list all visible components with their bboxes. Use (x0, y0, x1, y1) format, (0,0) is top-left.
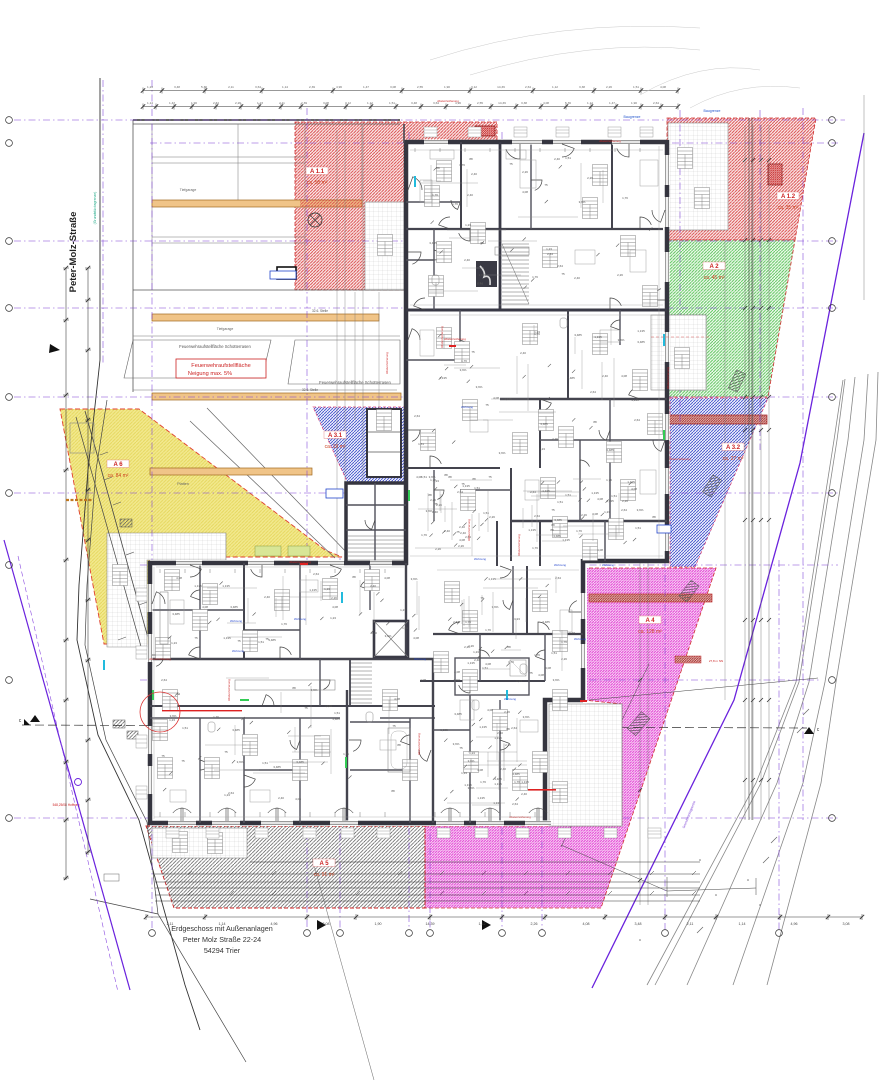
svg-text:Peter Molz Straße 22-24: Peter Molz Straße 22-24 (183, 935, 261, 944)
svg-text:2,40: 2,40 (464, 258, 470, 262)
svg-text:3,485: 3,485 (172, 612, 180, 616)
svg-text:2,11: 2,11 (687, 922, 694, 926)
svg-text:1,14: 1,14 (587, 101, 593, 105)
svg-text:1,12: 1,12 (552, 85, 558, 89)
svg-text:88: 88 (551, 523, 555, 527)
svg-text:2,40: 2,40 (574, 276, 580, 280)
svg-text:1,90: 1,90 (444, 85, 450, 89)
svg-text:Wohnung: Wohnung (230, 619, 242, 623)
svg-text:1,23: 1,23 (147, 85, 153, 89)
svg-text:1,51: 1,51 (421, 475, 427, 479)
svg-text:2,64: 2,64 (512, 802, 518, 806)
svg-text:Feuerwehraufstellfläche Schott: Feuerwehraufstellfläche Schotterrasen (319, 380, 391, 385)
svg-text:1,51: 1,51 (635, 526, 641, 530)
svg-text:4,08: 4,08 (538, 673, 544, 677)
svg-text:3,485: 3,485 (554, 518, 562, 522)
svg-text:2,40: 2,40 (432, 510, 438, 514)
svg-text:Wohnung: Wohnung (504, 697, 516, 701)
svg-text:4,08: 4,08 (631, 487, 637, 491)
svg-text:2,26: 2,26 (617, 273, 623, 277)
svg-text:3,6%: 3,6% (579, 200, 586, 204)
svg-text:1,23: 1,23 (400, 608, 406, 612)
svg-text:3,08: 3,08 (323, 922, 330, 926)
svg-text:54294 Trier: 54294 Trier (204, 946, 241, 955)
svg-text:1,51: 1,51 (565, 493, 571, 497)
svg-text:1,76: 1,76 (485, 628, 491, 632)
svg-text:3,485: 3,485 (542, 620, 550, 624)
svg-text:Platten: Platten (177, 482, 189, 486)
svg-text:1,23: 1,23 (546, 247, 552, 251)
svg-text:88: 88 (506, 727, 510, 731)
svg-text:Absturzsicherung: Absturzsicherung (467, 519, 471, 541)
svg-text:1,12: 1,12 (367, 101, 373, 105)
svg-text:1,51: 1,51 (611, 494, 617, 498)
svg-text:2,26: 2,26 (331, 596, 337, 600)
svg-text:1,76: 1,76 (461, 359, 467, 363)
svg-text:75: 75 (392, 724, 396, 728)
svg-text:1,76: 1,76 (514, 780, 520, 784)
svg-text:A 1.1: A 1.1 (310, 169, 325, 175)
svg-text:3,6%: 3,6% (411, 577, 418, 581)
svg-text:Absturzsicherung: Absturzsicherung (437, 99, 459, 103)
svg-text:Wohnung: Wohnung (294, 617, 306, 621)
svg-text:3,08: 3,08 (323, 101, 329, 105)
svg-text:1,76: 1,76 (532, 546, 538, 550)
svg-text:1,135: 1,135 (594, 335, 602, 339)
svg-text:3,485: 3,485 (574, 333, 582, 337)
svg-text:3,38: 3,38 (521, 101, 527, 105)
svg-text:88: 88 (352, 575, 356, 579)
svg-text:Erdgeschoss mit Außenanlagen: Erdgeschoss mit Außenanlagen (171, 924, 272, 933)
svg-text:Absturzsicherung: Absturzsicherung (669, 457, 691, 461)
svg-text:2,64: 2,64 (634, 418, 640, 422)
svg-text:1,135: 1,135 (477, 796, 485, 800)
svg-text:2,64: 2,64 (525, 85, 531, 89)
svg-text:4,08: 4,08 (487, 708, 493, 712)
svg-text:4,08: 4,08 (176, 576, 182, 580)
svg-text:2,26: 2,26 (552, 437, 558, 441)
svg-text:32.6. Stelle: 32.6. Stelle (302, 388, 318, 392)
svg-text:A 4: A 4 (645, 618, 655, 624)
svg-text:4,96: 4,96 (336, 85, 342, 89)
svg-text:4,08: 4,08 (660, 85, 666, 89)
svg-text:3,485: 3,485 (606, 448, 614, 452)
svg-text:3,6%: 3,6% (476, 385, 483, 389)
svg-text:88: 88 (292, 686, 296, 690)
svg-text:2,26: 2,26 (235, 101, 241, 105)
svg-text:1,23: 1,23 (516, 679, 522, 683)
svg-text:Wohnung: Wohnung (554, 563, 566, 567)
svg-text:2,26: 2,26 (531, 922, 538, 926)
svg-text:2,64: 2,64 (557, 264, 563, 268)
svg-text:2,64: 2,64 (621, 508, 627, 512)
svg-text:1,23: 1,23 (257, 101, 263, 105)
svg-text:1,14: 1,14 (739, 922, 746, 926)
svg-text:3,485: 3,485 (540, 422, 548, 426)
svg-text:1,14: 1,14 (282, 85, 288, 89)
svg-text:Tiefgarage: Tiefgarage (217, 327, 234, 331)
svg-text:1,135: 1,135 (521, 780, 529, 784)
svg-text:1,51: 1,51 (482, 666, 488, 670)
svg-text:3,6%: 3,6% (523, 715, 530, 719)
svg-text:2,26: 2,26 (489, 515, 495, 519)
svg-text:2,40: 2,40 (278, 796, 284, 800)
svg-text:1,76: 1,76 (432, 193, 438, 197)
svg-text:1,23: 1,23 (330, 616, 336, 620)
svg-text:75: 75 (161, 754, 165, 758)
svg-text:1,135: 1,135 (494, 736, 502, 740)
svg-text:1,23: 1,23 (461, 771, 467, 775)
svg-text:88: 88 (507, 645, 511, 649)
svg-text:2,26: 2,26 (458, 544, 464, 548)
svg-text:3,48: 3,48 (635, 922, 642, 926)
svg-text:1,14: 1,14 (147, 101, 153, 105)
svg-text:Wohnung: Wohnung (232, 649, 244, 653)
svg-text:1,51: 1,51 (633, 85, 639, 89)
svg-text:1,135: 1,135 (194, 584, 202, 588)
svg-text:75: 75 (529, 671, 533, 675)
svg-text:1,23: 1,23 (324, 587, 330, 591)
svg-text:2,64: 2,64 (547, 252, 553, 256)
svg-text:3,6%: 3,6% (618, 338, 625, 342)
svg-text:88: 88 (391, 789, 395, 793)
svg-text:ca. 19 m²: ca. 19 m² (325, 444, 346, 450)
svg-text:Absturzsicherung: Absturzsicherung (517, 534, 521, 556)
svg-text:1,51: 1,51 (402, 626, 408, 630)
svg-text:75: 75 (461, 482, 465, 486)
svg-text:1,76: 1,76 (534, 332, 540, 336)
svg-text:(Grundstücksgrenze): (Grundstücksgrenze) (93, 192, 97, 225)
svg-text:2,26: 2,26 (606, 85, 612, 89)
svg-text:Absturzsicherung: Absturzsicherung (444, 337, 466, 341)
svg-text:3,485: 3,485 (553, 534, 561, 538)
svg-text:4,08: 4,08 (597, 548, 603, 552)
svg-text:2,26: 2,26 (622, 499, 628, 503)
svg-text:75: 75 (485, 403, 489, 407)
svg-text:1,76: 1,76 (480, 780, 486, 784)
svg-text:2,64: 2,64 (161, 678, 167, 682)
svg-text:75: 75 (509, 162, 513, 166)
svg-text:2,40: 2,40 (602, 374, 608, 378)
svg-text:88: 88 (593, 420, 597, 424)
svg-text:1,90: 1,90 (191, 101, 197, 105)
svg-text:Absturzsicherung: Absturzsicherung (385, 352, 389, 374)
svg-text:1,135: 1,135 (488, 577, 496, 581)
svg-text:Absturzsicherung: Absturzsicherung (599, 139, 621, 143)
svg-text:3,48: 3,48 (411, 101, 417, 105)
svg-text:3,485: 3,485 (429, 241, 437, 245)
svg-text:2,40: 2,40 (459, 525, 465, 529)
svg-text:1,76: 1,76 (465, 620, 471, 624)
svg-text:ca. 84 m²: ca. 84 m² (108, 473, 129, 479)
svg-text:1,23: 1,23 (514, 617, 520, 621)
svg-text:A 6: A 6 (113, 462, 123, 468)
svg-text:1,23: 1,23 (469, 751, 475, 755)
svg-text:4,08: 4,08 (545, 666, 551, 670)
svg-text:1,135: 1,135 (440, 728, 448, 732)
svg-text:2,40: 2,40 (497, 731, 503, 735)
svg-text:2,40: 2,40 (500, 767, 506, 771)
svg-text:4,08: 4,08 (477, 768, 483, 772)
svg-text:Wohnung: Wohnung (414, 657, 426, 661)
svg-text:3,6%: 3,6% (311, 688, 318, 692)
svg-text:3,6%: 3,6% (385, 634, 392, 638)
svg-text:75: 75 (434, 502, 438, 506)
svg-text:27,8 m NN: 27,8 m NN (709, 659, 723, 663)
svg-text:Absturzsicherung: Absturzsicherung (289, 560, 311, 564)
svg-text:1,51: 1,51 (474, 486, 480, 490)
svg-text:88: 88 (550, 528, 554, 532)
svg-text:Wohnung: Wohnung (602, 563, 614, 567)
svg-text:2,11: 2,11 (279, 101, 285, 105)
svg-text:4,08: 4,08 (621, 374, 627, 378)
svg-text:1,47: 1,47 (363, 85, 369, 89)
svg-text:Absturzsicherung: Absturzsicherung (227, 679, 231, 701)
svg-text:3,6%: 3,6% (237, 760, 244, 764)
svg-text:Baugrenze: Baugrenze (624, 115, 641, 119)
svg-text:4,08: 4,08 (420, 678, 426, 682)
svg-text:1,90: 1,90 (631, 101, 637, 105)
svg-text:2,40: 2,40 (264, 595, 270, 599)
svg-text:14,39: 14,39 (497, 85, 505, 89)
svg-text:75: 75 (459, 746, 463, 750)
svg-text:1,23: 1,23 (604, 510, 610, 514)
svg-text:1,51: 1,51 (262, 761, 268, 765)
svg-text:2,64: 2,64 (477, 281, 483, 285)
svg-text:3,485: 3,485 (268, 638, 276, 642)
svg-text:2,64: 2,64 (326, 704, 332, 708)
svg-text:3,485: 3,485 (512, 772, 520, 776)
svg-text:1,51: 1,51 (182, 726, 188, 730)
svg-text:3,485: 3,485 (567, 376, 575, 380)
svg-text:1,135: 1,135 (562, 538, 570, 542)
svg-text:1,135: 1,135 (479, 725, 487, 729)
svg-text:1,135: 1,135 (467, 661, 475, 665)
svg-text:75: 75 (181, 759, 185, 763)
svg-text:75: 75 (544, 183, 548, 187)
svg-text:3,38: 3,38 (579, 85, 585, 89)
svg-text:1,135: 1,135 (631, 398, 639, 402)
svg-text:Absturzsicherung: Absturzsicherung (149, 657, 171, 661)
svg-text:75: 75 (488, 475, 492, 479)
svg-text:1,76: 1,76 (606, 478, 612, 482)
svg-text:Wohnung: Wohnung (474, 557, 486, 561)
svg-text:1,47: 1,47 (169, 101, 175, 105)
svg-text:4,08: 4,08 (459, 538, 465, 542)
svg-text:2,64: 2,64 (213, 101, 219, 105)
svg-text:75: 75 (561, 272, 565, 276)
svg-text:ca. 128 m²: ca. 128 m² (638, 629, 662, 635)
svg-text:1,23: 1,23 (465, 223, 471, 227)
svg-text:5,36: 5,36 (201, 85, 207, 89)
svg-text:Baugrenze: Baugrenze (704, 109, 721, 113)
svg-text:3,6%: 3,6% (553, 678, 560, 682)
svg-text:1,76: 1,76 (452, 202, 458, 206)
svg-text:3,485: 3,485 (232, 728, 240, 732)
svg-text:Peter-Molz-Straße: Peter-Molz-Straße (68, 212, 79, 293)
svg-text:2,64: 2,64 (511, 726, 517, 730)
svg-text:2,40: 2,40 (471, 172, 477, 176)
svg-text:3,485: 3,485 (230, 605, 238, 609)
svg-text:14,39: 14,39 (498, 101, 506, 105)
svg-text:4,08: 4,08 (454, 670, 460, 674)
svg-text:2,26: 2,26 (587, 176, 593, 180)
svg-text:4,08: 4,08 (202, 605, 208, 609)
svg-text:Neigung max. 5%: Neigung max. 5% (188, 371, 232, 377)
svg-text:A 2: A 2 (709, 264, 719, 270)
svg-text:1,135: 1,135 (627, 480, 635, 484)
svg-text:3,08: 3,08 (843, 922, 850, 926)
svg-text:Wohnung: Wohnung (574, 637, 586, 641)
svg-text:ca. 45 m²: ca. 45 m² (704, 275, 725, 281)
svg-text:2,40: 2,40 (554, 157, 560, 161)
svg-text:1,76: 1,76 (343, 752, 349, 756)
svg-text:A 5: A 5 (319, 861, 329, 867)
svg-text:ca. 91 m²: ca. 91 m² (314, 872, 335, 878)
svg-text:1,51: 1,51 (258, 640, 264, 644)
svg-text:88: 88 (472, 477, 476, 481)
svg-text:4,08: 4,08 (543, 101, 549, 105)
svg-text:3,485: 3,485 (273, 765, 281, 769)
svg-text:4,08: 4,08 (493, 396, 499, 400)
svg-text:Feuerwehraufstellfläche Schott: Feuerwehraufstellfläche Schotterrasen (179, 344, 251, 349)
svg-text:2,26: 2,26 (504, 710, 510, 714)
svg-text:2,26: 2,26 (464, 645, 470, 649)
svg-text:2,26: 2,26 (522, 170, 528, 174)
svg-text:4,08: 4,08 (413, 636, 419, 640)
svg-text:ca. 58 m²: ca. 58 m² (307, 180, 328, 186)
svg-text:2,64: 2,64 (653, 101, 659, 105)
svg-text:Absturzsicherung: Absturzsicherung (666, 367, 670, 389)
svg-text:75: 75 (304, 706, 308, 710)
svg-text:1,23: 1,23 (539, 447, 545, 451)
svg-text:Feuerwehraufstellfläche: Feuerwehraufstellfläche (191, 363, 250, 369)
svg-text:1,135: 1,135 (528, 528, 536, 532)
svg-text:1,135: 1,135 (222, 584, 230, 588)
svg-text:2,39: 2,39 (309, 85, 315, 89)
svg-text:Wohnung: Wohnung (461, 405, 473, 409)
svg-text:88: 88 (448, 475, 452, 479)
svg-text:3,485: 3,485 (454, 712, 462, 716)
svg-text:2,40: 2,40 (467, 193, 473, 197)
svg-text:2,64: 2,64 (590, 390, 596, 394)
svg-text:75: 75 (237, 639, 241, 643)
svg-text:1,135: 1,135 (223, 636, 231, 640)
svg-text:Tiefgarage: Tiefgarage (180, 188, 197, 192)
svg-text:2,40: 2,40 (460, 531, 466, 535)
svg-text:1,135: 1,135 (309, 588, 317, 592)
svg-text:1,12: 1,12 (479, 922, 486, 926)
svg-text:A 1.2: A 1.2 (781, 194, 796, 200)
svg-text:2,26: 2,26 (435, 547, 441, 551)
svg-text:32.6. Stelle: 32.6. Stelle (312, 309, 328, 313)
svg-text:75: 75 (194, 636, 198, 640)
svg-text:88: 88 (397, 743, 401, 747)
svg-text:3,485: 3,485 (637, 340, 645, 344)
svg-text:ca. 27 m²: ca. 27 m² (723, 456, 744, 462)
svg-text:1,76: 1,76 (622, 196, 628, 200)
svg-text:4,08: 4,08 (295, 797, 301, 801)
svg-text:2,64: 2,64 (457, 490, 463, 494)
svg-text:5,36: 5,36 (565, 101, 571, 105)
svg-text:1,76: 1,76 (213, 715, 219, 719)
svg-text:1,51: 1,51 (557, 500, 563, 504)
svg-text:2,55: 2,55 (417, 85, 423, 89)
svg-text:4,08: 4,08 (522, 190, 528, 194)
svg-text:88: 88 (652, 515, 656, 519)
svg-text:1,51: 1,51 (389, 101, 395, 105)
svg-text:1,23: 1,23 (169, 718, 175, 722)
svg-text:2,40: 2,40 (474, 658, 480, 662)
svg-text:2,55: 2,55 (477, 101, 483, 105)
svg-text:2,40: 2,40 (370, 584, 376, 588)
svg-text:75: 75 (265, 637, 269, 641)
svg-text:2,11: 2,11 (228, 85, 234, 89)
svg-text:4,08: 4,08 (394, 697, 400, 701)
svg-text:2,39: 2,39 (301, 101, 307, 105)
svg-text:2,64: 2,64 (414, 414, 420, 418)
svg-text:88: 88 (428, 493, 432, 497)
svg-text:3,6%: 3,6% (454, 678, 461, 682)
svg-text:3,6%: 3,6% (637, 508, 644, 512)
svg-text:3,48: 3,48 (174, 85, 180, 89)
svg-text:1,47: 1,47 (609, 101, 615, 105)
svg-text:3,08: 3,08 (390, 85, 396, 89)
svg-text:1,76: 1,76 (532, 275, 538, 279)
svg-text:1,76: 1,76 (421, 533, 427, 537)
svg-text:4,08: 4,08 (384, 576, 390, 580)
svg-text:88: 88 (436, 166, 440, 170)
svg-text:1,90: 1,90 (375, 922, 382, 926)
svg-text:1,23: 1,23 (569, 631, 575, 635)
svg-text:75: 75 (224, 750, 228, 754)
svg-text:4,96: 4,96 (791, 922, 798, 926)
svg-text:1,135: 1,135 (494, 782, 502, 786)
svg-text:3,6%: 3,6% (429, 475, 436, 479)
svg-text:3,485: 3,485 (332, 717, 340, 721)
svg-text:1,23: 1,23 (171, 641, 177, 645)
svg-text:1,76: 1,76 (281, 622, 287, 626)
svg-text:4,08: 4,08 (597, 497, 603, 501)
svg-text:1,51: 1,51 (565, 156, 571, 160)
svg-text:1,23: 1,23 (473, 650, 479, 654)
svg-text:1,51: 1,51 (551, 651, 557, 655)
svg-text:88: 88 (469, 157, 473, 161)
svg-text:3,12: 3,12 (345, 101, 351, 105)
svg-text:ca. 35 m²: ca. 35 m² (778, 205, 799, 211)
svg-text:1,135: 1,135 (591, 491, 599, 495)
svg-text:1,23: 1,23 (224, 793, 230, 797)
svg-text:75: 75 (551, 508, 555, 512)
svg-text:1,76: 1,76 (534, 653, 540, 657)
svg-text:3,6%: 3,6% (492, 605, 499, 609)
svg-text:3,6%: 3,6% (499, 451, 506, 455)
svg-text:A 3.2: A 3.2 (726, 445, 741, 451)
svg-text:14,39: 14,39 (426, 922, 435, 926)
svg-text:2,40: 2,40 (521, 792, 527, 796)
svg-text:75: 75 (471, 350, 475, 354)
svg-text:4,08: 4,08 (332, 605, 338, 609)
svg-text:3,6%: 3,6% (468, 759, 475, 763)
svg-text:1,76: 1,76 (459, 163, 465, 167)
svg-text:Absturzsicherung: Absturzsicherung (417, 733, 421, 755)
svg-text:3,64: 3,64 (255, 85, 261, 89)
svg-text:2,64: 2,64 (313, 572, 319, 576)
svg-text:3,6%: 3,6% (460, 368, 467, 372)
svg-text:2,26: 2,26 (505, 743, 511, 747)
svg-text:3,12: 3,12 (471, 85, 477, 89)
svg-text:1,76: 1,76 (576, 529, 582, 533)
